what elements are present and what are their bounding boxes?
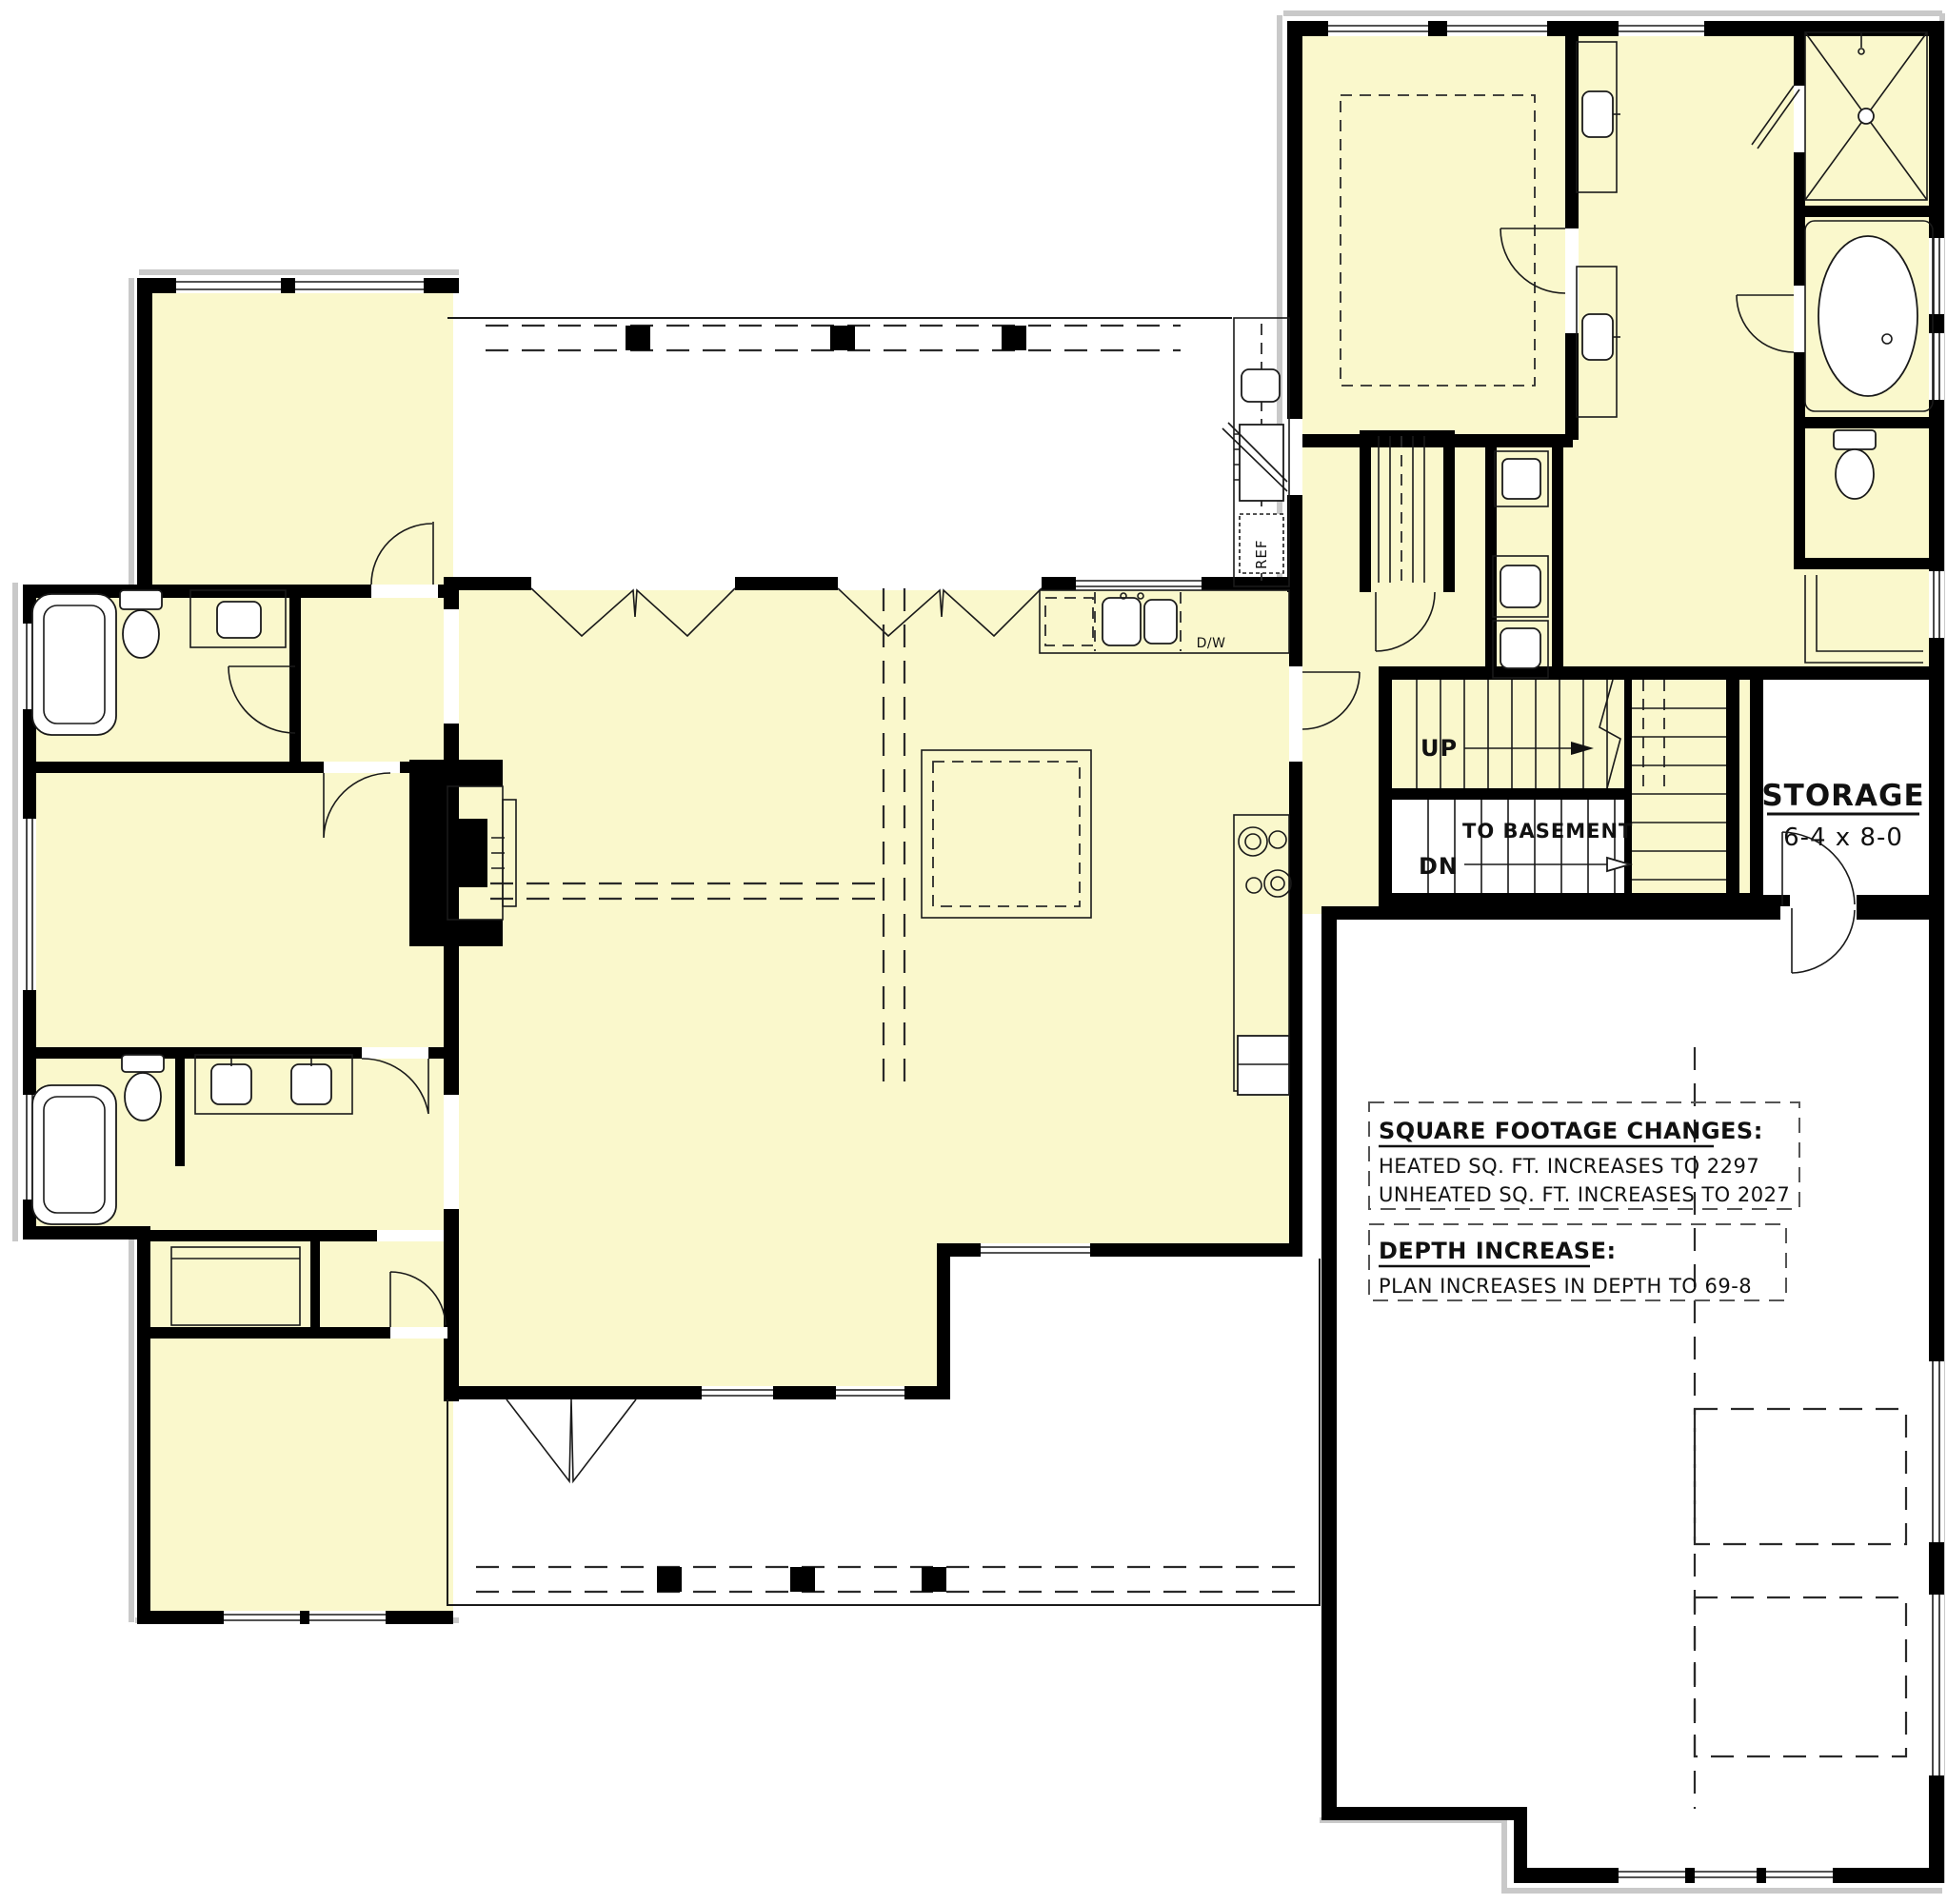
storage-room: STORAGE 6-4 x 8-0: [1761, 779, 1924, 852]
outdoor-grill: [1240, 425, 1283, 501]
porch-post: [626, 326, 650, 350]
porch-post: [1002, 326, 1026, 350]
refrigerator-label: REF: [1253, 539, 1270, 569]
toilet-master: [1834, 430, 1876, 499]
note-sqft-heading: SQUARE FOOTAGE CHANGES:: [1379, 1118, 1763, 1144]
toilet: [120, 590, 162, 658]
porch-post: [657, 1567, 682, 1592]
floor-plan: REF: [0, 0, 1947, 1904]
porch-post: [790, 1567, 815, 1592]
note-sqft-line2: UNHEATED SQ. FT. INCREASES TO 2027: [1379, 1183, 1790, 1206]
garage-bay: [1695, 1409, 1906, 1544]
french-door: [507, 1399, 636, 1481]
vanity-sink: [291, 1064, 331, 1104]
porch-post: [830, 326, 855, 350]
stairs-up-label: UP: [1421, 735, 1458, 762]
toilet: [122, 1055, 164, 1121]
outdoor-sink: [1242, 369, 1280, 402]
dishwasher-label: D/W: [1197, 636, 1226, 651]
storage-label: STORAGE: [1761, 779, 1924, 813]
note-sqft-line1: HEATED SQ. FT. INCREASES TO 2297: [1379, 1155, 1759, 1178]
porch-post: [922, 1567, 946, 1592]
refrigerator: [1238, 1036, 1289, 1095]
plan-notes: SQUARE FOOTAGE CHANGES: HEATED SQ. FT. I…: [1369, 1102, 1799, 1300]
room-bedroom-lower-left: [143, 1234, 453, 1616]
kitchen-sink: [1103, 593, 1177, 645]
room-master-bedroom: [1293, 29, 1571, 438]
to-basement-label: TO BASEMENT: [1462, 820, 1633, 843]
room-bedroom-upper-left: [143, 282, 453, 590]
storage-dimensions: 6-4 x 8-0: [1783, 823, 1903, 852]
vanity-sink: [211, 1064, 251, 1104]
garage: SQUARE FOOTAGE CHANGES: HEATED SQ. FT. I…: [1369, 1047, 1906, 1809]
note-depth-line1: PLAN INCREASES IN DEPTH TO 69-8: [1379, 1275, 1752, 1298]
note-depth-heading: DEPTH INCREASE:: [1379, 1238, 1617, 1264]
room-great-room-kitchen-dining: [453, 583, 1297, 1392]
garage-bay: [1695, 1597, 1906, 1756]
rear-porch: REF: [447, 318, 1289, 586]
floor-plan-page: REF: [0, 0, 1947, 1904]
stairs-down-label: DN: [1419, 853, 1459, 880]
